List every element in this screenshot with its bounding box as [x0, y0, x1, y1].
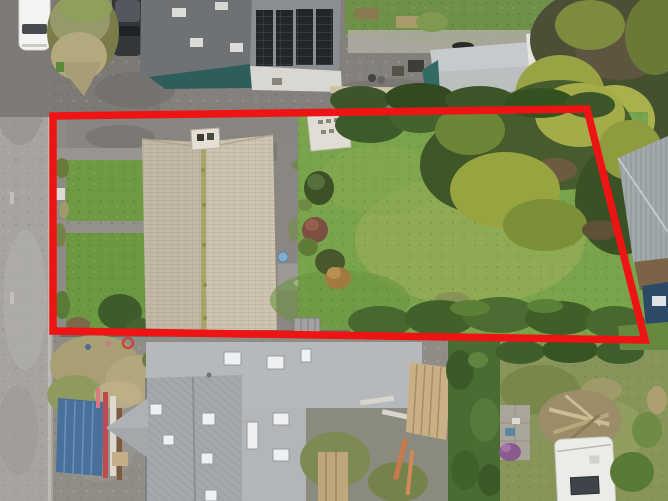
- vent: [272, 78, 282, 85]
- skylight: [150, 404, 162, 415]
- garden-hedge-vertical: [446, 340, 502, 501]
- planter-box: [355, 8, 379, 19]
- aerial-photo: [0, 0, 668, 501]
- construction-site: [47, 335, 502, 501]
- outlined-property: [53, 80, 665, 342]
- ribbed-container: [294, 318, 320, 332]
- skylight: [247, 422, 258, 449]
- skylight: [172, 8, 186, 17]
- pink-item: [106, 342, 111, 347]
- aerial-photo-canvas: [0, 0, 668, 501]
- skylight: [215, 2, 228, 10]
- skylight: [163, 435, 174, 445]
- blue-item: [85, 344, 91, 350]
- skylight: [301, 349, 311, 362]
- front-lawns: [54, 148, 156, 338]
- timber-stack-small: [318, 452, 348, 501]
- skylight: [230, 43, 243, 52]
- blue-shed: [642, 282, 668, 328]
- neighbour-garden: [495, 337, 668, 501]
- car-roof: [115, 0, 140, 22]
- path-strip: [56, 148, 156, 162]
- parked-white-car: [19, 0, 50, 50]
- chimney-pot: [197, 134, 204, 141]
- shed-label: [652, 296, 666, 306]
- skylight: [205, 490, 217, 501]
- skylight: [273, 449, 289, 461]
- skylight: [273, 413, 289, 425]
- skylight: [267, 356, 284, 369]
- roof-vent: [589, 455, 599, 464]
- skylight: [201, 453, 213, 464]
- windshield: [22, 24, 47, 34]
- skylight: [190, 38, 203, 47]
- skylight: [224, 352, 241, 365]
- chimney: [191, 128, 220, 150]
- solar-panels: [256, 9, 333, 66]
- chimney-pot: [207, 133, 214, 140]
- green-bin: [56, 62, 64, 72]
- water-butt: [278, 252, 288, 262]
- skylight: [202, 413, 215, 425]
- main-house: [142, 128, 277, 340]
- red-pole: [103, 392, 108, 478]
- mossy-ridge: [201, 148, 206, 338]
- caravan-solar-panel: [570, 476, 599, 494]
- caravan: [554, 437, 616, 501]
